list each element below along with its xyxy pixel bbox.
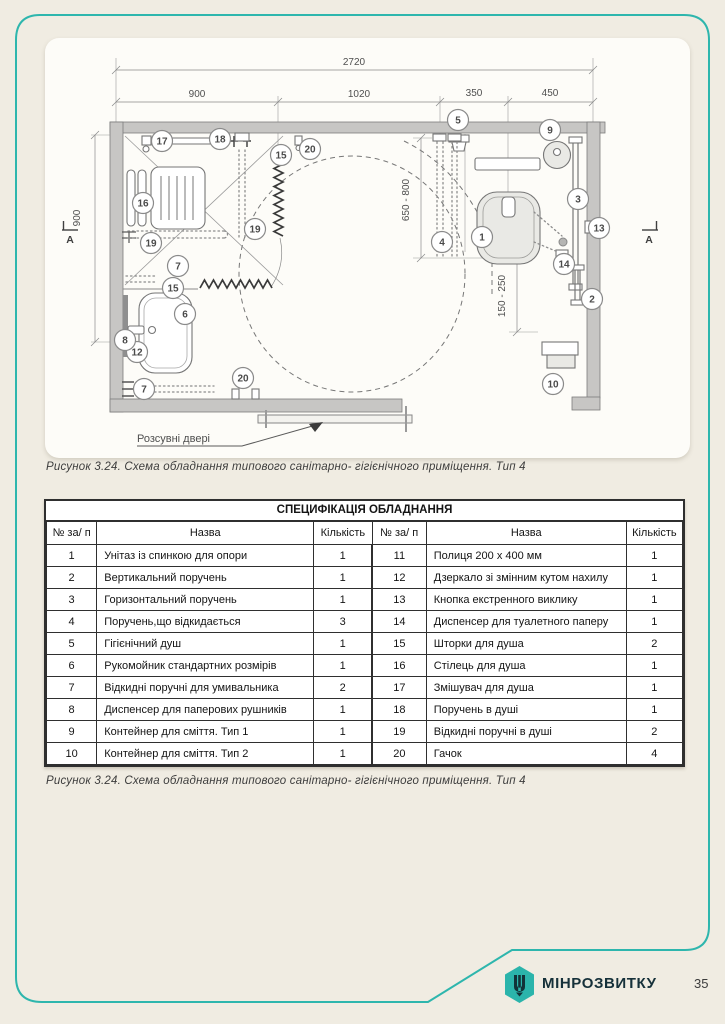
hooks-bottom <box>232 389 259 399</box>
grab-bar-mount <box>448 134 461 141</box>
svg-text:А: А <box>645 234 653 246</box>
cell-number: 10 <box>47 743 97 765</box>
ministry-logo-text: МІНРОЗВИТКУ <box>542 975 657 992</box>
cell-name: Гігієнічний душ <box>97 633 314 655</box>
cell-number: 1 <box>314 721 372 743</box>
cell-number: 1 <box>626 545 682 567</box>
dim-seg2: 1020 <box>348 89 371 100</box>
table-row: 10Контейнер для сміття. Тип 2120Гачок4 <box>47 743 683 765</box>
cell-name: Кнопка екстренного виклику <box>426 589 626 611</box>
cell-name: Відкидні поручні для умивальника <box>97 677 314 699</box>
svg-text:15: 15 <box>275 151 287 162</box>
dim-seg1: 900 <box>189 89 206 100</box>
svg-text:19: 19 <box>145 239 157 250</box>
cell-number: 1 <box>314 633 372 655</box>
table-row: 6Рукомойник стандартних розмірів116Стіле… <box>47 655 683 677</box>
svg-text:1: 1 <box>479 233 485 244</box>
cell-number: 1 <box>314 655 372 677</box>
cell-number: 7 <box>47 677 97 699</box>
svg-text:4: 4 <box>439 238 445 249</box>
shower-rail <box>168 138 214 144</box>
svg-text:9: 9 <box>547 126 553 137</box>
cell-number: 1 <box>626 677 682 699</box>
svg-text:14: 14 <box>558 260 570 271</box>
cell-name: Гачок <box>426 743 626 765</box>
cell-number: 1 <box>314 545 372 567</box>
cell-number: 1 <box>47 545 97 567</box>
rail-wall-mount <box>235 133 249 141</box>
cell-name: Полиця 200 х 400 мм <box>426 545 626 567</box>
floor-plan-drawing: 2720 900 1020 350 450 900 650 - 800 150 … <box>45 38 690 458</box>
cell-name: Рукомойник стандартних розмірів <box>97 655 314 677</box>
floor-plan-panel: 2720 900 1020 350 450 900 650 - 800 150 … <box>45 38 690 458</box>
table-title: СПЕЦИФІКАЦІЯ ОБЛАДНАННЯ <box>46 501 683 521</box>
table-row: 7Відкидні поручні для умивальника217Зміш… <box>47 677 683 699</box>
col-header-qty-1: Кількість <box>314 522 372 545</box>
cell-number: 1 <box>626 655 682 677</box>
cell-name: Диспенсер для паперових рушників <box>97 699 314 721</box>
cell-number: 12 <box>372 567 426 589</box>
cell-number: 17 <box>372 677 426 699</box>
cell-name: Горизонтальний поручень <box>97 589 314 611</box>
cell-name: Змішувач для душа <box>426 677 626 699</box>
svg-text:2: 2 <box>589 295 595 306</box>
svg-text:17: 17 <box>156 137 168 148</box>
dim-front: 150 - 250 <box>497 274 508 317</box>
cell-number: 18 <box>372 699 426 721</box>
table-row: 3Горизонтальний поручень113Кнопка екстре… <box>47 589 683 611</box>
col-header-name-2: Назва <box>426 522 626 545</box>
trash-container-1 <box>544 142 571 169</box>
curtain-horizontal <box>200 280 272 288</box>
specification-table: СПЕЦИФІКАЦІЯ ОБЛАДНАННЯ № за/ п Назва Кі… <box>44 499 685 767</box>
transfer-arc <box>404 141 487 232</box>
cell-number: 3 <box>314 611 372 633</box>
cell-number: 11 <box>372 545 426 567</box>
figure-caption-bottom: Рисунок 3.24. Схема обладнання типового … <box>46 775 686 787</box>
svg-text:10: 10 <box>547 380 559 391</box>
ministry-logo-icon <box>503 965 536 1005</box>
document-page: { "figure": { "caption_top": "Рисунок 3.… <box>0 0 725 1024</box>
cell-number: 13 <box>372 589 426 611</box>
cell-name: Контейнер для сміття. Тип 2 <box>97 743 314 765</box>
door-label: Розсувні двері <box>137 433 210 445</box>
cell-number: 14 <box>372 611 426 633</box>
figure-caption-top: Рисунок 3.24. Схема обладнання типового … <box>46 461 686 473</box>
col-header-num-1: № за/ п <box>47 522 97 545</box>
cell-number: 1 <box>626 611 682 633</box>
turning-circle <box>239 156 465 392</box>
cell-name: Вертикальний поручень <box>97 567 314 589</box>
floor-drain <box>559 238 567 246</box>
cell-number: 1 <box>626 699 682 721</box>
cell-number: 1 <box>314 567 372 589</box>
cell-number: 6 <box>47 655 97 677</box>
cell-number: 1 <box>314 699 372 721</box>
svg-text:7: 7 <box>175 262 181 273</box>
cell-name: Стілець для душа <box>426 655 626 677</box>
dim-overall: 2720 <box>343 57 366 68</box>
curtain-track <box>271 238 282 287</box>
dim-seg4: 450 <box>542 88 559 99</box>
svg-text:20: 20 <box>237 374 249 385</box>
cell-name: Дзеркало зі змінним кутом нахилу <box>426 567 626 589</box>
dim-seg3: 350 <box>466 88 483 99</box>
cell-name: Поручень,що відкидається <box>97 611 314 633</box>
cell-name: Диспенсер для туалетного паперу <box>426 611 626 633</box>
svg-text:20: 20 <box>304 145 316 156</box>
svg-text:19: 19 <box>249 225 261 236</box>
svg-text:18: 18 <box>214 135 226 146</box>
cell-number: 19 <box>372 721 426 743</box>
cell-number: 3 <box>47 589 97 611</box>
shelf <box>475 158 540 170</box>
cell-number: 15 <box>372 633 426 655</box>
cell-number: 20 <box>372 743 426 765</box>
cell-number: 4 <box>626 743 682 765</box>
cell-number: 1 <box>626 567 682 589</box>
table-row: 4Поручень,що відкидається314Диспенсер дл… <box>47 611 683 633</box>
table-row: 1Унітаз із спинкою для опори111Полиця 20… <box>47 545 683 567</box>
spec-table-body: 1Унітаз із спинкою для опори111Полиця 20… <box>47 545 683 765</box>
svg-text:6: 6 <box>182 310 188 321</box>
cell-name: Поручень в душі <box>426 699 626 721</box>
svg-text:5: 5 <box>455 116 461 127</box>
cell-number: 2 <box>314 677 372 699</box>
door-callout: Розсувні двері <box>137 422 323 446</box>
cell-number: 2 <box>47 567 97 589</box>
table-header-row: № за/ п Назва Кількість № за/ п Назва Кі… <box>47 522 683 545</box>
cell-number: 2 <box>626 721 682 743</box>
dim-depth: 650 - 800 <box>401 178 412 221</box>
cell-number: 16 <box>372 655 426 677</box>
cell-number: 5 <box>47 633 97 655</box>
table-row: 9Контейнер для сміття. Тип 1119Відкидні … <box>47 721 683 743</box>
page-number: 35 <box>694 976 708 991</box>
svg-text:А: А <box>66 234 74 246</box>
table-row: 2Вертикальний поручень112Дзеркало зі змі… <box>47 567 683 589</box>
table-row: 5Гігієнічний душ115Шторки для душа2 <box>47 633 683 655</box>
svg-text:13: 13 <box>593 224 605 235</box>
towel-dispenser-marks <box>122 382 134 396</box>
cell-number: 8 <box>47 699 97 721</box>
svg-text:12: 12 <box>131 348 143 359</box>
cell-number: 1 <box>314 743 372 765</box>
cell-number: 9 <box>47 721 97 743</box>
cell-name: Унітаз із спинкою для опори <box>97 545 314 567</box>
svg-text:3: 3 <box>575 195 581 206</box>
col-header-name-1: Назва <box>97 522 314 545</box>
trash-container-2 <box>542 342 578 368</box>
svg-text:16: 16 <box>137 199 149 210</box>
svg-text:8: 8 <box>122 336 128 347</box>
cell-name: Шторки для душа <box>426 633 626 655</box>
cell-name: Відкидні поручні в душі <box>426 721 626 743</box>
cell-number: 1 <box>314 589 372 611</box>
grab-bar-mount <box>433 134 446 141</box>
cell-number: 4 <box>47 611 97 633</box>
svg-text:7: 7 <box>141 385 147 396</box>
shower-mixer <box>142 136 151 152</box>
cell-name: Контейнер для сміття. Тип 1 <box>97 721 314 743</box>
dim-left: 900 <box>72 209 83 226</box>
svg-text:15: 15 <box>167 284 179 295</box>
section-marker-right: А <box>642 221 658 246</box>
curtain-vertical <box>274 164 283 236</box>
cell-number: 1 <box>626 589 682 611</box>
cell-number: 2 <box>626 633 682 655</box>
col-header-num-2: № за/ п <box>372 522 426 545</box>
col-header-qty-2: Кількість <box>626 522 682 545</box>
table-row: 8Диспенсер для паперових рушників118Пору… <box>47 699 683 721</box>
